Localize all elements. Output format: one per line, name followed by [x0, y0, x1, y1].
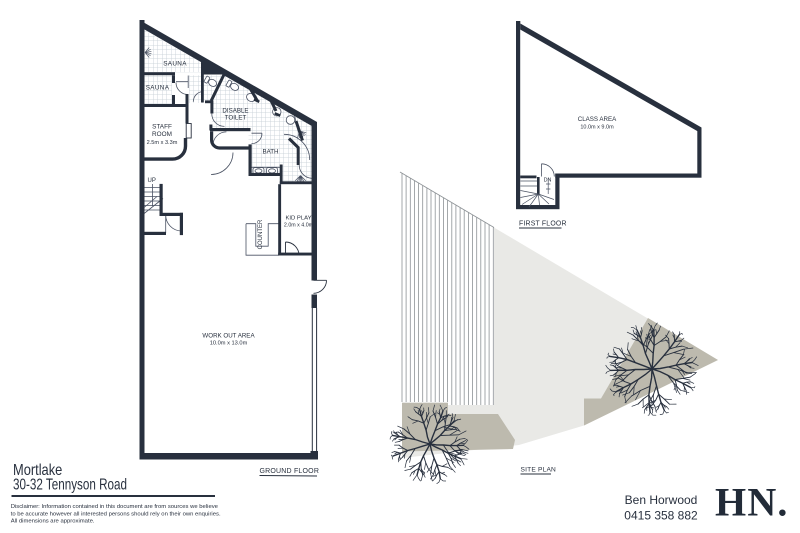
- svg-text:KID PLAY: KID PLAY: [285, 216, 311, 222]
- svg-text:FIRST FLOOR: FIRST FLOOR: [519, 220, 567, 227]
- svg-text:All dimensions are approximate: All dimensions are approximate.: [11, 519, 95, 525]
- svg-text:2.0m x 4.0m: 2.0m x 4.0m: [284, 223, 314, 229]
- svg-text:SAUNA: SAUNA: [163, 61, 187, 68]
- svg-text:BATH: BATH: [262, 149, 278, 156]
- svg-text:Disclaimer: Information contai: Disclaimer: Information contained in thi…: [11, 504, 219, 510]
- svg-text:GROUND FLOOR: GROUND FLOOR: [260, 468, 320, 475]
- svg-text:TOILET: TOILET: [225, 115, 247, 122]
- svg-text:SAUNA: SAUNA: [146, 85, 170, 92]
- svg-text:ROOM: ROOM: [152, 131, 172, 138]
- svg-text:to be accurate however all int: to be accurate however all interested pe…: [11, 511, 221, 517]
- svg-text:0415 358 882: 0415 358 882: [624, 509, 698, 523]
- svg-text:30-32 Tennyson Road: 30-32 Tennyson Road: [13, 475, 127, 493]
- svg-text:STAFF: STAFF: [152, 124, 172, 131]
- svg-text:2.5m x 3.3m: 2.5m x 3.3m: [147, 140, 178, 146]
- svg-text:HN.: HN.: [715, 480, 789, 525]
- svg-text:CLASS AREA: CLASS AREA: [578, 116, 617, 123]
- svg-text:SITE PLAN: SITE PLAN: [521, 467, 557, 474]
- svg-text:DISABLE: DISABLE: [222, 108, 248, 115]
- svg-text:DN: DN: [544, 177, 552, 183]
- svg-text:10.0m x 9.0m: 10.0m x 9.0m: [580, 124, 614, 130]
- svg-text:WORK OUT AREA: WORK OUT AREA: [202, 333, 255, 340]
- svg-text:10.0m x 13.0m: 10.0m x 13.0m: [210, 341, 248, 347]
- svg-text:COUNTER: COUNTER: [258, 219, 264, 249]
- svg-text:Ben Horwood: Ben Horwood: [625, 493, 698, 507]
- svg-text:UP: UP: [148, 178, 156, 184]
